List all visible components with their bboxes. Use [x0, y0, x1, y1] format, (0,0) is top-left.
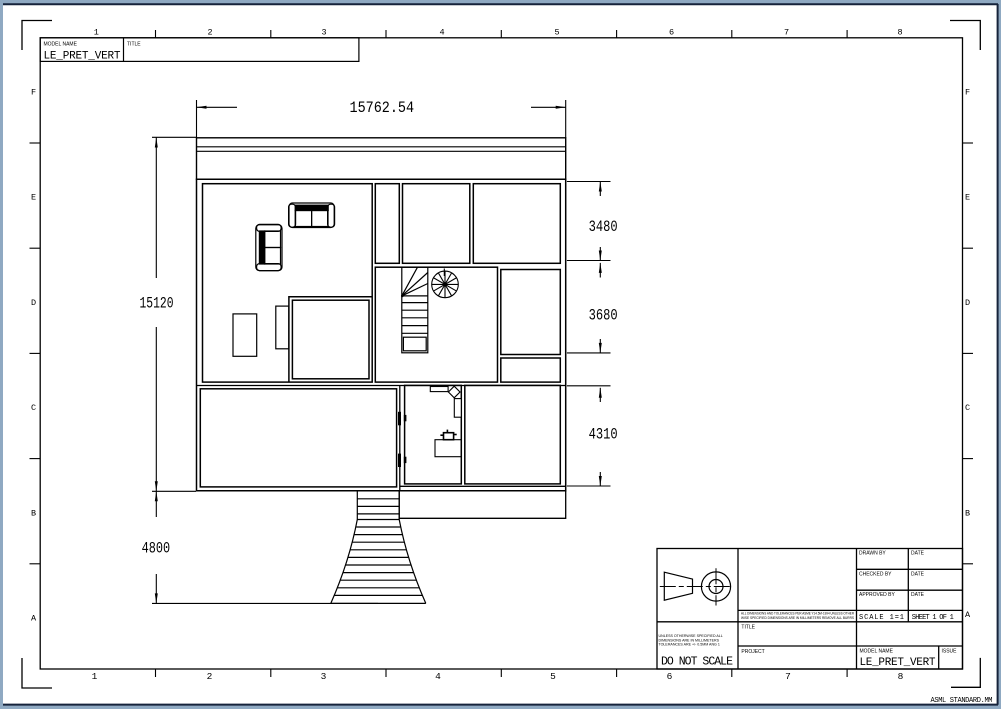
svg-text:PROJECT: PROJECT [741, 649, 764, 655]
svg-text:APPROVED BY: APPROVED BY [859, 592, 896, 598]
svg-text:SCALE 1=1: SCALE 1=1 [859, 614, 904, 622]
svg-text:DATE: DATE [911, 551, 925, 557]
svg-text:8: 8 [897, 27, 902, 37]
svg-text:A: A [965, 610, 971, 620]
svg-text:TITLE: TITLE [741, 625, 755, 631]
svg-text:15120: 15120 [140, 295, 174, 313]
svg-text:7: 7 [784, 27, 789, 37]
svg-text:3480: 3480 [589, 218, 618, 236]
svg-text:4: 4 [435, 671, 441, 682]
svg-text:2: 2 [207, 27, 212, 37]
svg-text:D: D [31, 298, 36, 308]
svg-text:8: 8 [898, 671, 904, 682]
svg-text:ISSUE: ISSUE [942, 649, 958, 655]
svg-text:B: B [31, 508, 36, 518]
svg-text:7: 7 [785, 671, 791, 682]
svg-text:5: 5 [554, 27, 559, 37]
svg-text:E: E [31, 193, 36, 203]
svg-text:4310: 4310 [589, 426, 618, 444]
svg-text:F: F [31, 88, 36, 98]
svg-text:TOLERANCES ARE +/- 0.5MM ANG 1: TOLERANCES ARE +/- 0.5MM ANG 1 [659, 643, 720, 647]
svg-text:CHECKED BY: CHECKED BY [859, 571, 892, 577]
svg-text:D: D [965, 298, 970, 308]
svg-text:F: F [965, 88, 970, 98]
svg-text:DRAWN BY: DRAWN BY [859, 551, 886, 557]
svg-text:3680: 3680 [589, 307, 618, 325]
svg-text:B: B [965, 508, 970, 518]
svg-text:2: 2 [207, 671, 213, 682]
svg-text:4: 4 [439, 27, 444, 37]
svg-text:3: 3 [321, 27, 326, 37]
svg-text:6: 6 [667, 671, 673, 682]
svg-text:4800: 4800 [142, 540, 171, 558]
svg-text:SHEET 1 OF 1: SHEET 1 OF 1 [912, 614, 954, 622]
svg-text:DATE: DATE [911, 571, 925, 577]
svg-text:MODEL NAME: MODEL NAME [860, 649, 894, 655]
svg-text:TITLE: TITLE [127, 42, 141, 48]
svg-text:1: 1 [94, 27, 99, 37]
svg-text:LE_PRET_VERT: LE_PRET_VERT [860, 657, 936, 669]
svg-text:A: A [31, 614, 37, 624]
svg-text:15762.54: 15762.54 [350, 99, 415, 117]
svg-text:5: 5 [550, 671, 556, 682]
svg-text:E: E [965, 193, 970, 203]
svg-text:3: 3 [321, 671, 327, 682]
svg-text:ASML STANDARD.MM: ASML STANDARD.MM [931, 697, 993, 705]
svg-text:MODEL NAME: MODEL NAME [44, 42, 78, 48]
svg-text:DO NOT SCALE: DO NOT SCALE [661, 656, 733, 669]
svg-text:DATE: DATE [911, 592, 925, 598]
svg-text:C: C [965, 403, 970, 413]
svg-text:1: 1 [92, 671, 98, 682]
svg-text:LE_PRET_VERT: LE_PRET_VERT [44, 51, 121, 63]
svg-text:C: C [31, 403, 36, 413]
svg-text:6: 6 [669, 27, 674, 37]
svg-text:WISE SPECIFIED DIMENSIONS ARE: WISE SPECIFIED DIMENSIONS ARE IN MILLIME… [741, 616, 855, 620]
